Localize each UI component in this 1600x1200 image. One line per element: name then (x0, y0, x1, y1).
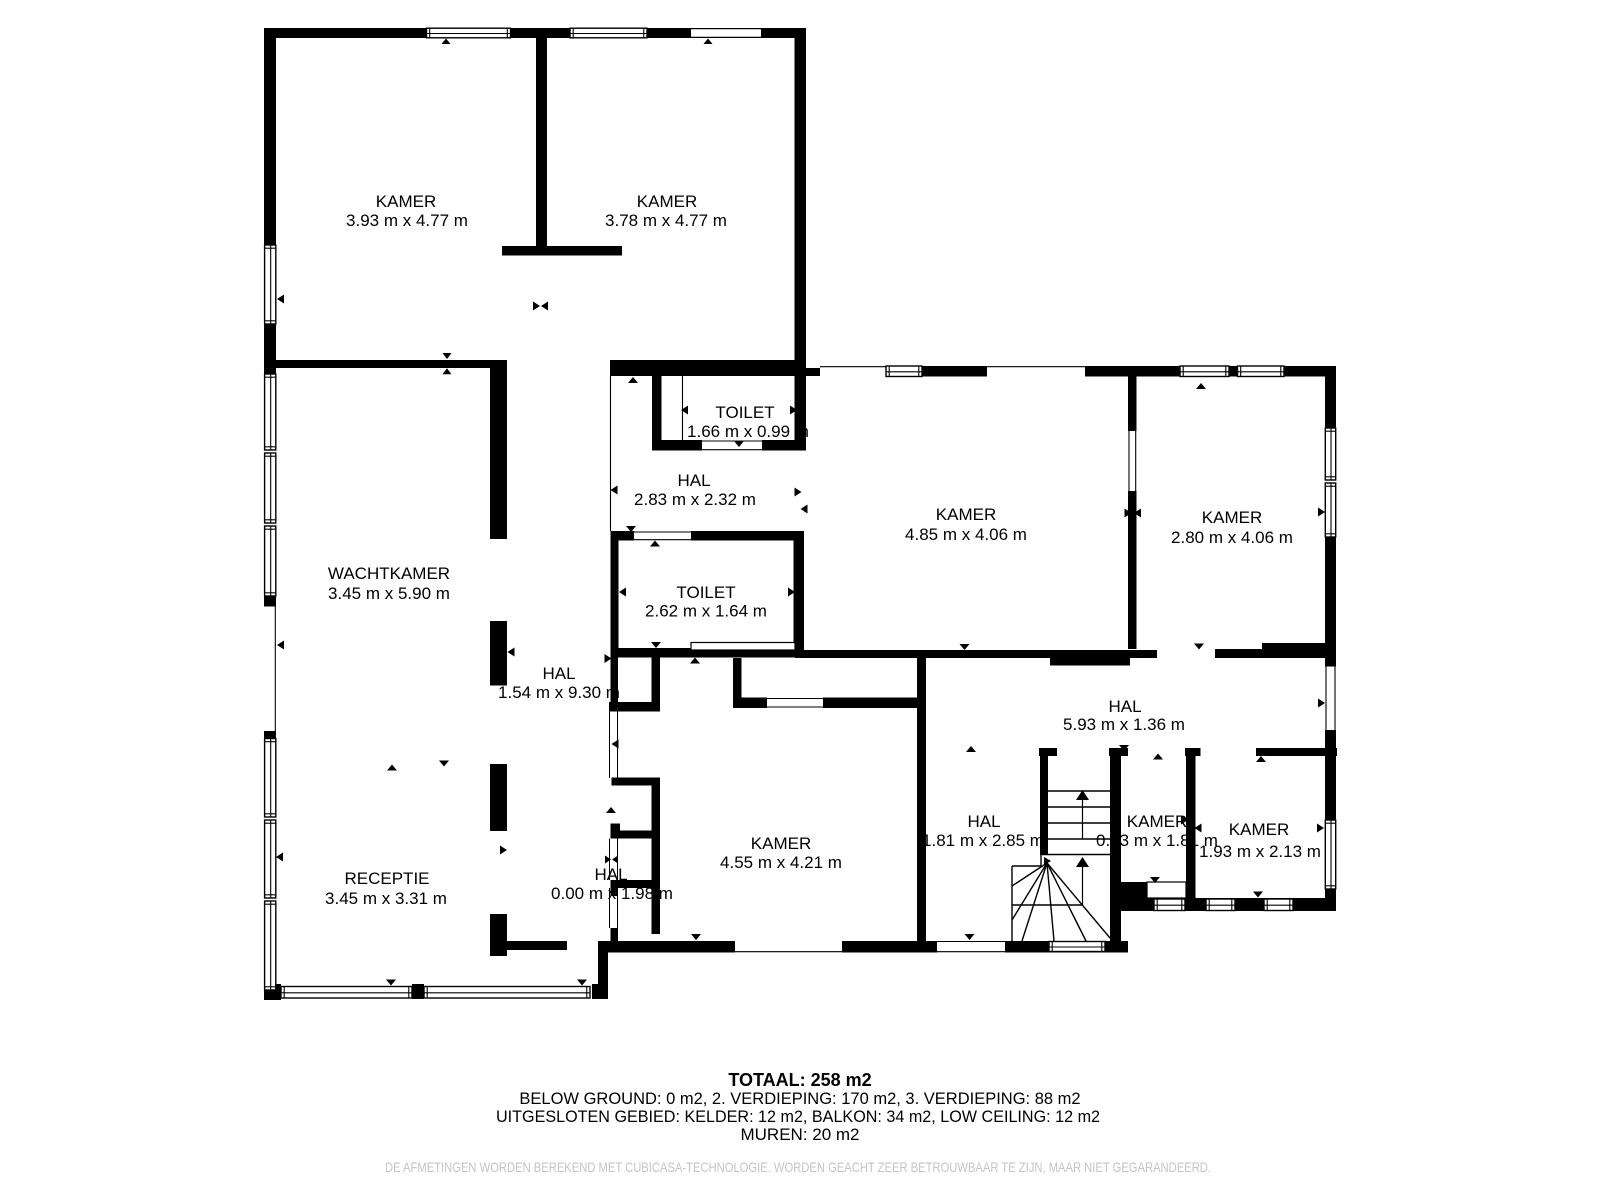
svg-text:2.62 m x 1.64 m: 2.62 m x 1.64 m (645, 602, 767, 621)
svg-text:BELOW GROUND: 0 m2, 2. VERDIEP: BELOW GROUND: 0 m2, 2. VERDIEPING: 170 m… (519, 1090, 1080, 1108)
svg-text:KAMER: KAMER (376, 192, 436, 211)
svg-text:DE AFMETINGEN WORDEN BEREKEND: DE AFMETINGEN WORDEN BEREKEND MET CUBICA… (385, 1160, 1211, 1175)
svg-text:HAL: HAL (677, 471, 710, 490)
svg-text:KAMER: KAMER (1202, 508, 1262, 527)
svg-text:UITGESLOTEN GEBIED: KELDER: 12: UITGESLOTEN GEBIED: KELDER: 12 m2, BALKO… (496, 1108, 1100, 1126)
svg-text:KAMER: KAMER (1127, 812, 1187, 831)
svg-text:4.55 m x 4.21 m: 4.55 m x 4.21 m (720, 853, 842, 872)
svg-text:HAL: HAL (542, 664, 575, 683)
svg-text:1.93 m x 2.13 m: 1.93 m x 2.13 m (1199, 842, 1321, 861)
svg-text:1.54 m x 9.30 m: 1.54 m x 9.30 m (498, 683, 620, 702)
svg-text:3.45 m x 5.90 m: 3.45 m x 5.90 m (328, 584, 450, 603)
svg-text:5.93 m x 1.36 m: 5.93 m x 1.36 m (1063, 715, 1185, 734)
svg-text:3.78 m x 4.77 m: 3.78 m x 4.77 m (605, 211, 727, 230)
svg-text:KAMER: KAMER (936, 505, 996, 524)
svg-text:2.83 m x 2.32 m: 2.83 m x 2.32 m (634, 490, 756, 509)
svg-text:2.80 m x 4.06 m: 2.80 m x 4.06 m (1171, 528, 1293, 547)
svg-text:TOILET: TOILET (715, 403, 774, 422)
svg-text:TOTAAL: 258 m2: TOTAAL: 258 m2 (728, 1070, 871, 1090)
svg-text:KAMER: KAMER (1229, 820, 1289, 839)
svg-text:3.93 m x 4.77 m: 3.93 m x 4.77 m (346, 211, 468, 230)
svg-text:MUREN: 20 m2: MUREN: 20 m2 (740, 1125, 859, 1144)
svg-text:RECEPTIE: RECEPTIE (344, 869, 429, 888)
svg-text:KAMER: KAMER (751, 834, 811, 853)
svg-text:TOILET: TOILET (676, 583, 735, 602)
svg-text:1.66 m x 0.99 m: 1.66 m x 0.99 m (687, 422, 809, 441)
svg-text:1.81 m x 2.85 m: 1.81 m x 2.85 m (922, 831, 1044, 850)
svg-text:HAL: HAL (967, 812, 1000, 831)
svg-text:HAL: HAL (1108, 697, 1141, 716)
svg-text:3.45 m x 3.31 m: 3.45 m x 3.31 m (325, 889, 447, 908)
svg-text:KAMER: KAMER (637, 192, 697, 211)
svg-text:4.85 m x 4.06 m: 4.85 m x 4.06 m (905, 525, 1027, 544)
svg-text:WACHTKAMER: WACHTKAMER (328, 564, 450, 583)
